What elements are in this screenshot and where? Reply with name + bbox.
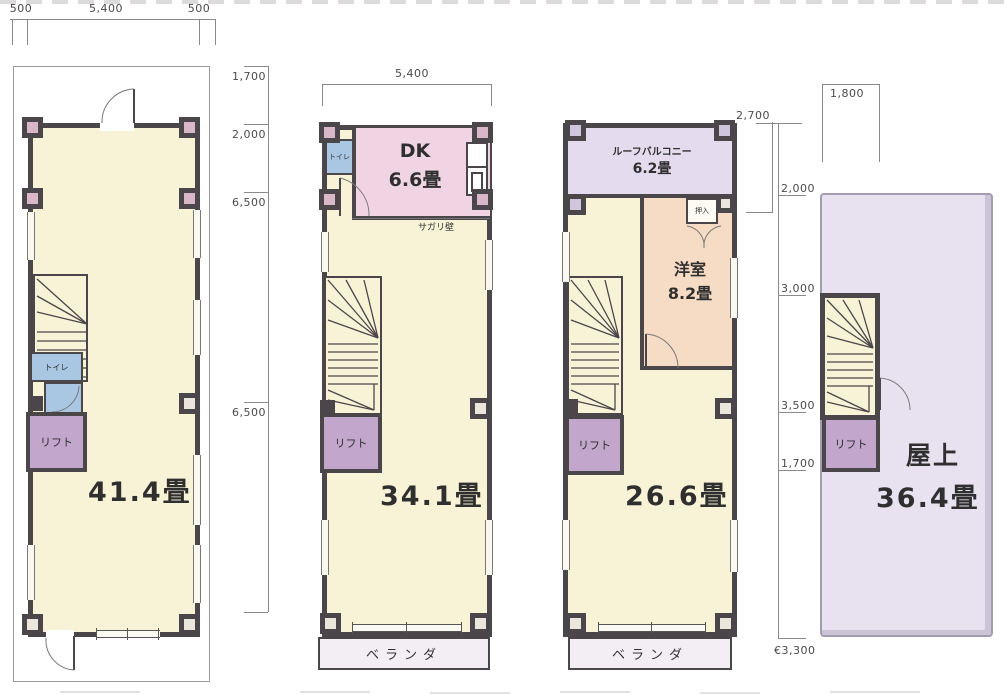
- column: [179, 188, 200, 209]
- dim-tick: [322, 84, 323, 106]
- column: [22, 614, 43, 635]
- dim-line: [322, 84, 492, 85]
- scan-artifact: [560, 691, 630, 693]
- dim-tick: [822, 84, 823, 162]
- dim-label: 3,500: [781, 399, 815, 412]
- door-arc: [44, 634, 78, 674]
- scan-artifact-top: [0, 0, 1006, 4]
- dim-label: 1,700: [222, 70, 266, 83]
- lift-room: リフト: [822, 416, 880, 472]
- dim-tick: [756, 123, 802, 124]
- western-room-label: 洋室: [658, 256, 722, 280]
- staircase: [324, 276, 382, 415]
- dim-label: 3,000: [781, 282, 815, 295]
- column: [320, 613, 341, 634]
- dim-tick: [244, 124, 268, 125]
- column: [565, 613, 586, 634]
- lift-label: リフト: [335, 435, 368, 451]
- veranda: ベランダ: [318, 637, 490, 670]
- window: [562, 232, 570, 282]
- column: [565, 194, 586, 215]
- dim-tick: [244, 66, 268, 67]
- dim-label: 2,700: [736, 109, 770, 122]
- column: [715, 613, 736, 634]
- dim-label: €3,300: [774, 644, 816, 657]
- dim-tick: [244, 192, 268, 193]
- dim-label: 500: [182, 2, 216, 15]
- window: [321, 232, 329, 272]
- stair-treads: [569, 278, 621, 413]
- scan-artifact: [300, 691, 370, 693]
- dim-tick: [879, 84, 880, 162]
- window: [485, 240, 493, 290]
- column: [320, 400, 335, 415]
- dim-label: 6,500: [222, 406, 266, 419]
- column: [28, 396, 43, 411]
- column: [22, 188, 43, 209]
- column: [179, 614, 200, 635]
- window: [562, 520, 570, 570]
- sliding-window: [598, 624, 706, 632]
- column: [563, 399, 578, 414]
- area-label: 41.4畳: [88, 470, 192, 509]
- western-room-area: 8.2畳: [654, 280, 726, 304]
- column: [319, 189, 340, 210]
- dim-label: 1,700: [781, 457, 815, 470]
- door-arc: [878, 376, 914, 414]
- door-arc: [48, 384, 82, 414]
- toilet-room: トイレ: [325, 139, 354, 175]
- kitchen-counter: [466, 142, 488, 196]
- dim-tick: [199, 19, 200, 45]
- dim-label: 500: [4, 2, 38, 15]
- toilet-label: トイレ: [45, 362, 69, 373]
- dimension-chain: [268, 66, 269, 612]
- dim-tick: [27, 19, 28, 45]
- veranda-label: ベランダ: [366, 644, 442, 663]
- column: [22, 117, 43, 138]
- dim-tick: [778, 638, 806, 639]
- dk-label: DK: [385, 140, 445, 162]
- stair-treads: [326, 278, 380, 413]
- door-arc: [337, 176, 371, 220]
- window: [193, 210, 201, 258]
- window: [321, 520, 329, 575]
- area-label: 36.4畳: [876, 476, 980, 515]
- rooftop-title: 屋上: [898, 436, 968, 472]
- dim-tick: [778, 412, 806, 413]
- dim-tick: [778, 195, 806, 196]
- door-arc: [98, 86, 140, 126]
- column: [179, 393, 200, 414]
- scan-artifact: [430, 692, 510, 694]
- window: [193, 545, 201, 603]
- staircase: [567, 276, 623, 415]
- dim-tick: [778, 295, 806, 296]
- dim-tick: [244, 612, 268, 613]
- lift-label: リフト: [578, 437, 611, 453]
- staircase: [820, 293, 880, 420]
- window: [730, 258, 738, 318]
- dim-line: [10, 19, 216, 20]
- door-arc: [644, 332, 680, 372]
- veranda: ベランダ: [568, 637, 732, 670]
- dim-label: 2,000: [222, 128, 266, 141]
- area-label: 26.6畳: [625, 474, 729, 513]
- scan-artifact: [60, 691, 140, 693]
- dk-area-label: 6.6畳: [372, 165, 458, 192]
- column: [714, 120, 735, 141]
- dim-tick: [215, 19, 216, 45]
- dim-line: [772, 122, 773, 212]
- dim-tick: [778, 470, 806, 471]
- dim-tick: [746, 212, 773, 213]
- dim-label: 2,000: [781, 182, 815, 195]
- column: [472, 189, 493, 210]
- scan-artifact: [700, 692, 760, 694]
- sliding-window: [96, 630, 160, 638]
- window: [27, 212, 35, 260]
- column: [715, 398, 736, 419]
- window: [485, 520, 493, 575]
- dim-label: 1,800: [830, 87, 864, 100]
- stair-treads: [825, 298, 875, 415]
- lift-room: リフト: [320, 413, 382, 473]
- column: [470, 398, 491, 419]
- toilet-room: トイレ: [30, 352, 83, 382]
- lift-label: リフト: [40, 434, 73, 450]
- floorplan-sheet: 500 5,400 500 トイレ リフト: [0, 0, 1006, 695]
- dim-label: 5,400: [382, 67, 442, 80]
- area-label: 34.1畳: [380, 474, 484, 513]
- roof-balcony-label: ルーフバルコニー: [585, 143, 719, 158]
- scan-artifact: [830, 691, 920, 693]
- column: [716, 194, 735, 213]
- roof-balcony-area: 6.2畳: [605, 158, 699, 178]
- column: [179, 117, 200, 138]
- dim-label: 5,400: [80, 2, 132, 15]
- column: [319, 122, 340, 143]
- dim-label: 6,500: [222, 196, 266, 209]
- sliding-window: [352, 624, 462, 632]
- dimension-chain: [778, 123, 779, 638]
- sagari-wall-line: [352, 218, 490, 219]
- dim-tick: [491, 84, 492, 106]
- column: [470, 613, 491, 634]
- sagari-wall-label: サガリ壁: [396, 220, 476, 233]
- dim-tick: [244, 402, 268, 403]
- lift-label: リフト: [835, 436, 868, 452]
- column: [472, 122, 493, 143]
- window: [193, 455, 201, 525]
- closet-label: 押入: [695, 206, 709, 216]
- window: [730, 520, 738, 572]
- veranda-label: ベランダ: [612, 644, 688, 663]
- closet: 押入: [686, 198, 718, 224]
- window: [27, 545, 35, 600]
- lift-room: リフト: [565, 415, 624, 475]
- window: [193, 300, 201, 355]
- dim-tick: [12, 19, 13, 45]
- closet-door-arcs: [684, 224, 724, 254]
- column: [565, 120, 586, 141]
- toilet-label: トイレ: [329, 152, 350, 162]
- lift-room: リフト: [26, 412, 87, 472]
- dim-line: [822, 84, 880, 85]
